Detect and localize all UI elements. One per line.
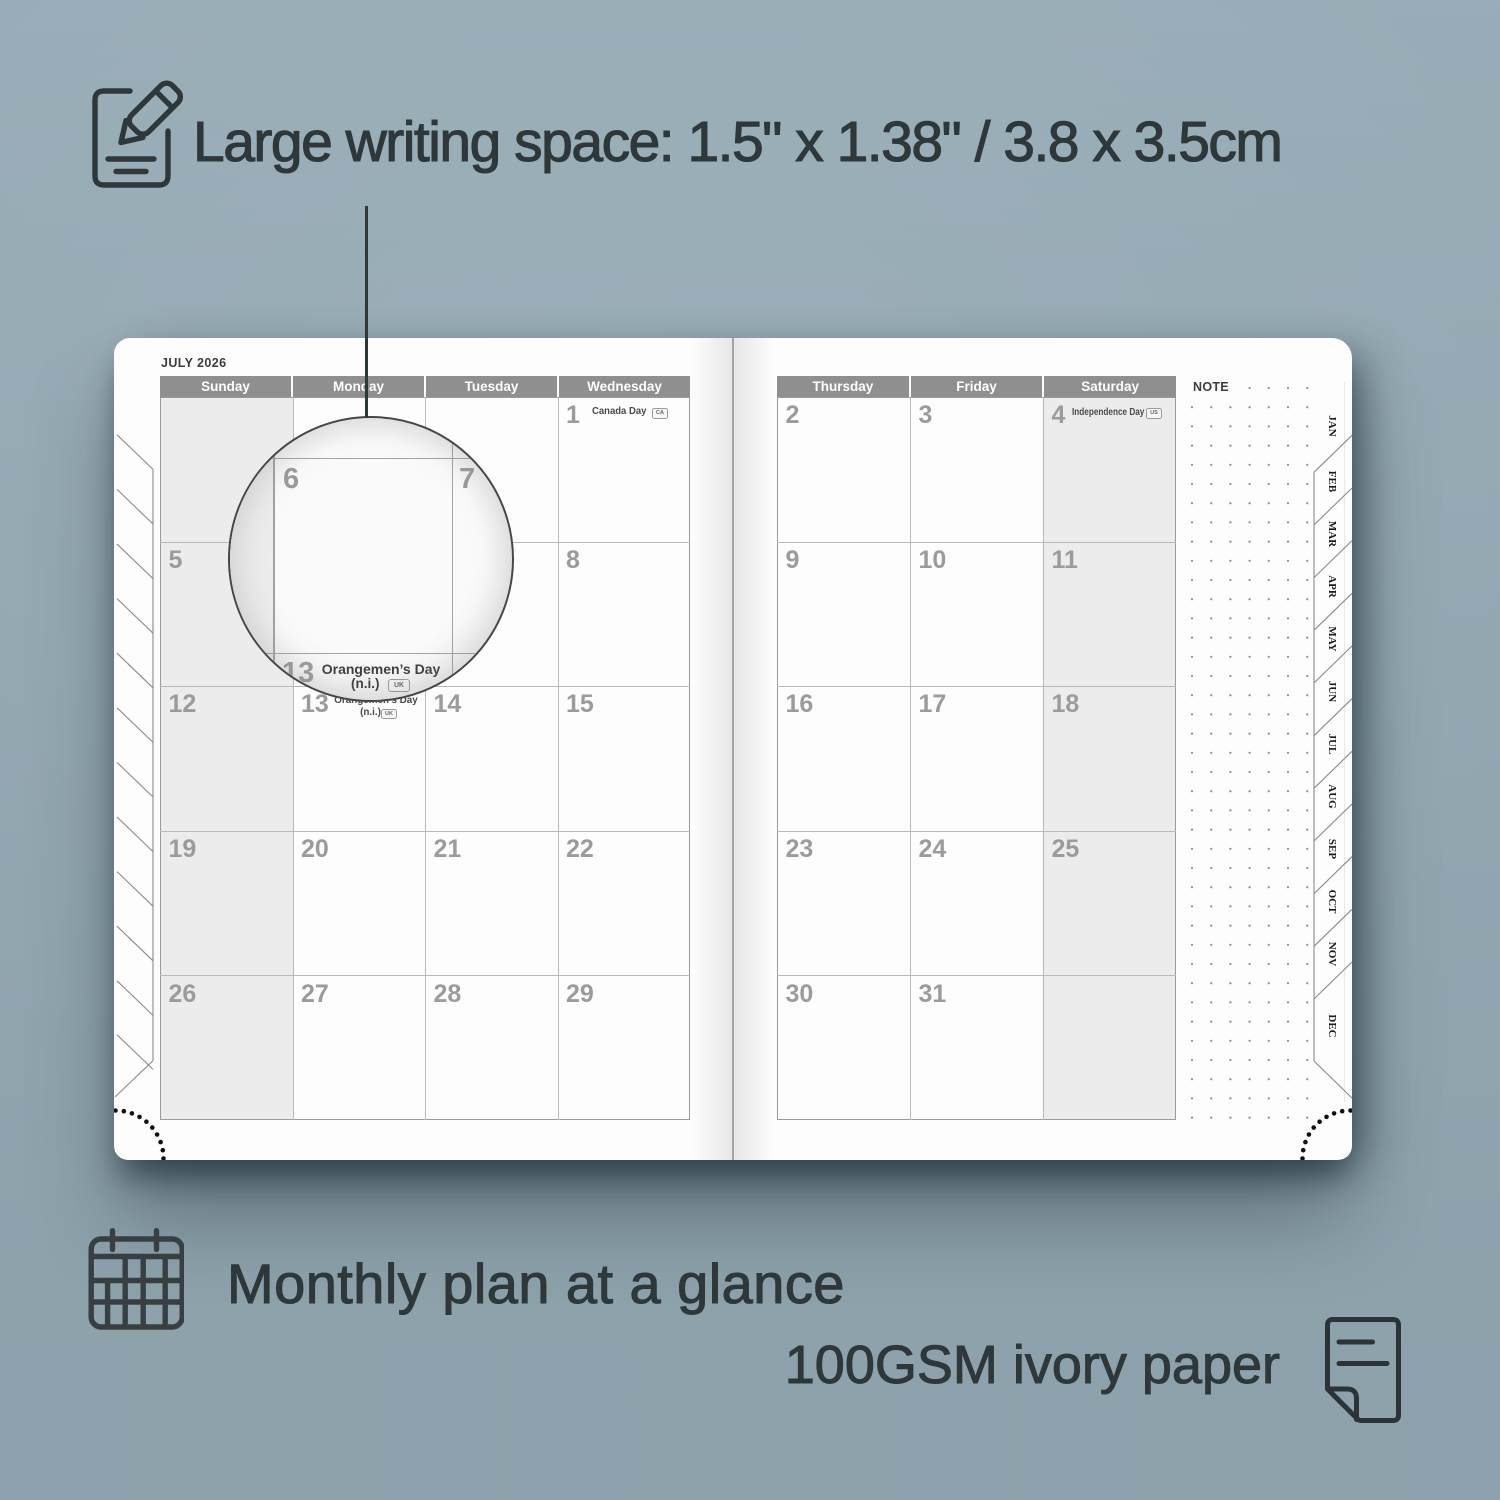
svg-text:MAY: MAY <box>1326 626 1338 651</box>
svg-text:SEP: SEP <box>1326 839 1338 859</box>
svg-text:FEB: FEB <box>1326 471 1338 493</box>
svg-text:JUL: JUL <box>1326 734 1338 755</box>
svg-text:MAR: MAR <box>1326 521 1338 548</box>
svg-text:DEC: DEC <box>1326 1014 1338 1037</box>
svg-text:JAN: JAN <box>1326 415 1338 436</box>
svg-text:OCT: OCT <box>1326 890 1338 915</box>
svg-text:JUN: JUN <box>1326 681 1338 702</box>
svg-text:AUG: AUG <box>1326 784 1338 809</box>
svg-text:NOV: NOV <box>1326 942 1338 967</box>
svg-text:APR: APR <box>1326 575 1338 599</box>
